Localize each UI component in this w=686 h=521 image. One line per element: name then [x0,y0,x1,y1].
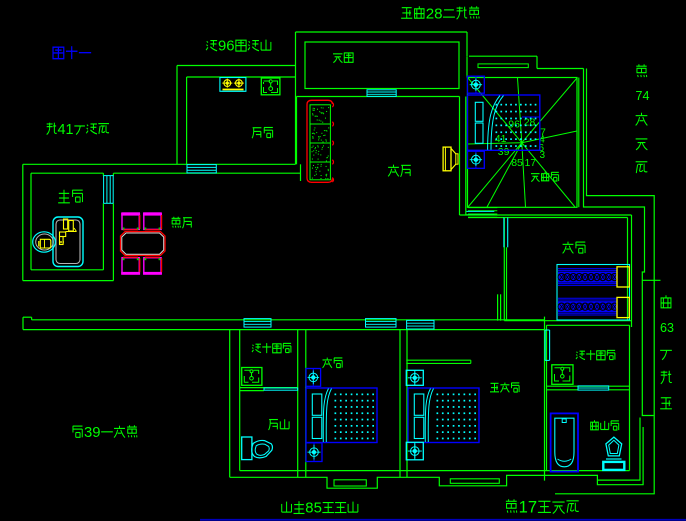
svg-text:39: 39 [84,425,101,441]
svg-text:96: 96 [218,39,235,55]
svg-text:96: 96 [508,119,520,131]
svg-text:85: 85 [511,157,523,169]
svg-text:85: 85 [305,501,322,517]
svg-text:3: 3 [540,150,546,161]
svg-text:41: 41 [58,122,74,138]
svg-text:74: 74 [636,89,650,103]
svg-text:28: 28 [426,5,443,22]
svg-text:63: 63 [660,321,674,335]
svg-text:39: 39 [498,146,510,158]
svg-text:17: 17 [525,157,537,169]
svg-text:17: 17 [519,498,537,517]
